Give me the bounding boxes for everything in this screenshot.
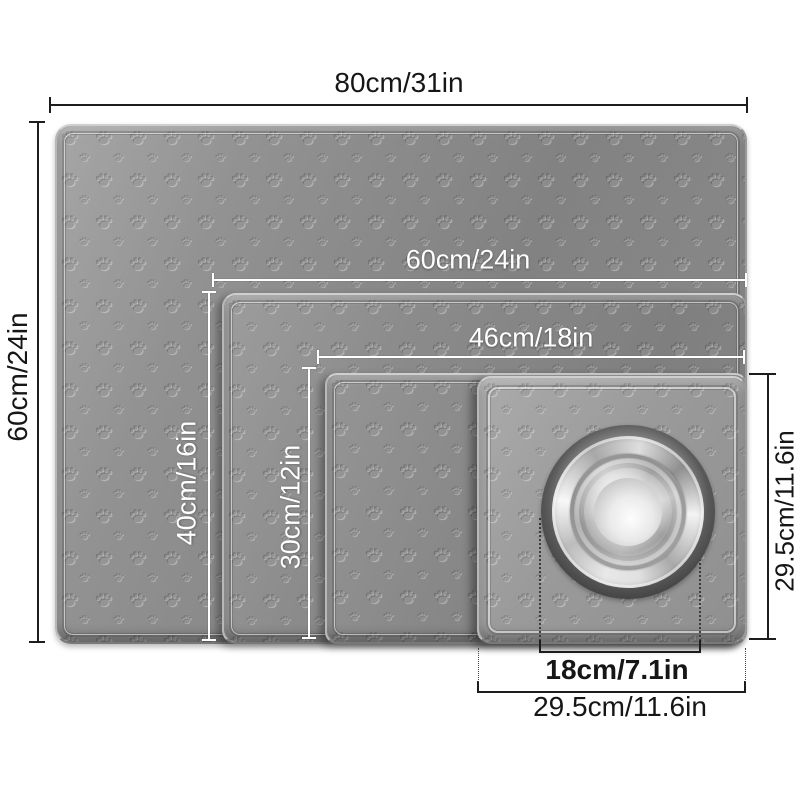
- dimension-tick: [477, 681, 479, 693]
- dimension-tick: [749, 638, 776, 640]
- dimension-tick: [743, 350, 745, 364]
- bowl-diameter-label: 18cm/7.1in: [545, 654, 688, 686]
- steel-bowl-center-highlight: [594, 478, 662, 546]
- mat3-width-label: 46cm/18in: [469, 323, 594, 354]
- mat2-height-dimension-line: [208, 292, 210, 641]
- dimension-tick: [317, 350, 319, 364]
- outer-height-label: 60cm/24in: [2, 312, 34, 441]
- dimension-tick: [746, 97, 748, 113]
- outer-width-dimension-line: [50, 104, 748, 106]
- mat-size-diagram: 80cm/31in 60cm/24in 60cm/24in 46cm/18in …: [0, 0, 800, 800]
- mat2-width-dimension-line: [213, 279, 747, 281]
- mat3-height-dimension-line: [308, 368, 310, 639]
- extension-line-left: [478, 648, 479, 682]
- dimension-tick: [749, 373, 776, 375]
- dimension-tick: [29, 121, 45, 123]
- outer-height-dimension-line: [37, 122, 39, 643]
- dimension-tick: [302, 367, 316, 369]
- mat3-height-label: 30cm/12in: [276, 445, 307, 570]
- dimension-tick: [202, 639, 216, 641]
- mat2-height-label: 40cm/16in: [172, 421, 203, 546]
- dimension-tick: [29, 641, 45, 643]
- mat4-height-label: 29.5cm/11.6in: [770, 430, 800, 591]
- dimension-tick: [699, 640, 701, 653]
- bowl-projection-line-left: [539, 518, 541, 641]
- dimension-tick: [744, 681, 746, 693]
- bowl-diameter-bracket: [539, 651, 701, 653]
- extension-line-right: [745, 648, 746, 682]
- outer-width-label: 80cm/31in: [334, 67, 463, 99]
- dimension-tick: [302, 637, 316, 639]
- dimension-tick: [49, 97, 51, 113]
- mat4-width-label: 29.5cm/11.6in: [533, 691, 707, 723]
- mat2-width-label: 60cm/24in: [406, 245, 531, 276]
- dimension-tick: [212, 273, 214, 287]
- dimension-tick: [202, 291, 216, 293]
- mat3-width-dimension-line: [318, 356, 745, 358]
- dimension-tick: [539, 640, 541, 653]
- dimension-tick: [745, 273, 747, 287]
